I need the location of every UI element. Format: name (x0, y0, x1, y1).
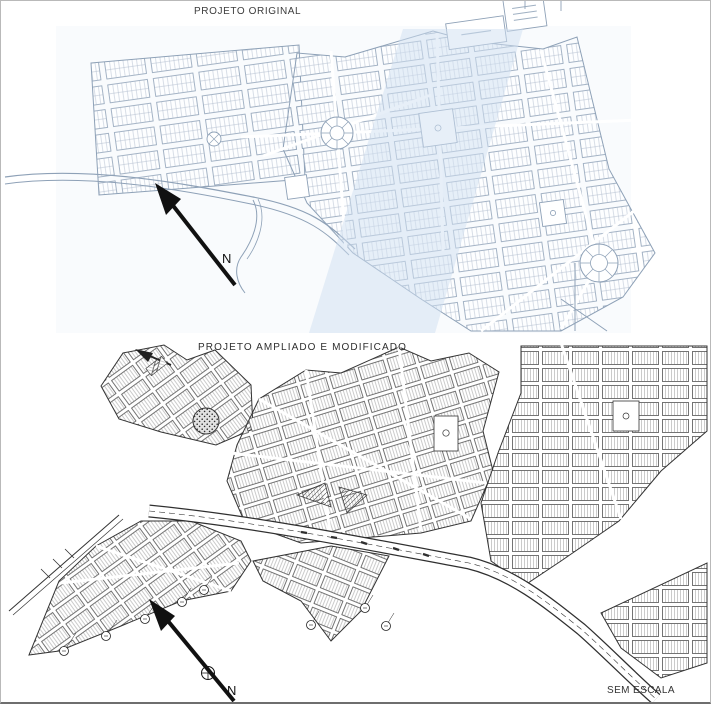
plaza-square (539, 199, 566, 226)
north-label: N (227, 683, 236, 698)
small-plaza-circle (207, 132, 221, 146)
modified-plan-panel: PROJETO AMPLIADO E MODIFICADO N SEM ESCA… (1, 333, 711, 704)
plaza-square (285, 175, 310, 200)
west-grid-blocks (91, 45, 305, 195)
two-plans-figure: PROJETO ORIGINAL N (0, 0, 711, 704)
plaza-square (613, 401, 639, 431)
plaza-square (434, 416, 458, 451)
roundabout-icon (580, 244, 618, 282)
northwest-protrusion-blocks (101, 345, 253, 445)
modified-plan-map (1, 333, 711, 704)
north-label: N (222, 251, 231, 266)
original-plan-panel: PROJETO ORIGINAL N (1, 1, 711, 333)
south-v-wedge-blocks (253, 546, 389, 641)
tree-plaza-circle (193, 408, 219, 434)
roundabout-icon (321, 117, 353, 149)
east-blocks (481, 346, 707, 585)
modified-blocks-group (29, 345, 707, 678)
original-plan-title: PROJETO ORIGINAL (194, 6, 301, 17)
north-arrow-icon (149, 599, 234, 701)
original-plan-map (1, 1, 711, 333)
scale-note: SEM ESCALA (607, 685, 675, 696)
modified-plan-title: PROJETO AMPLIADO E MODIFICADO (198, 342, 407, 353)
